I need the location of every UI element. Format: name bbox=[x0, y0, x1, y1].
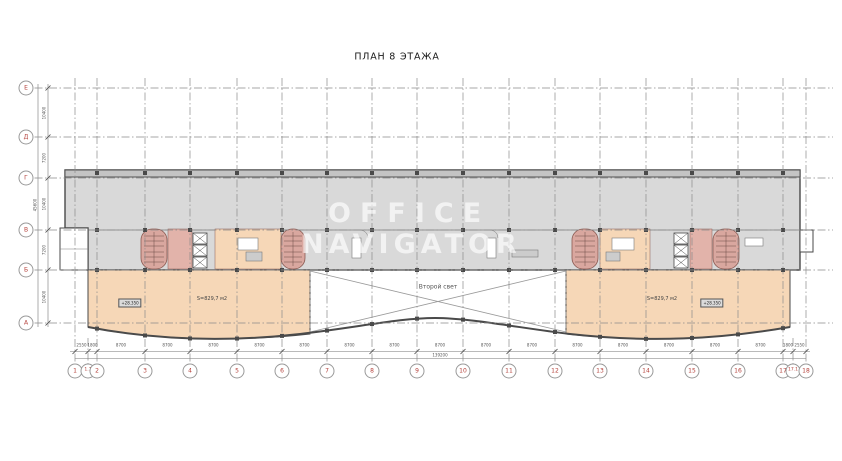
left-core bbox=[141, 229, 305, 269]
structural-column bbox=[280, 171, 284, 175]
core-room bbox=[168, 229, 192, 269]
core-room bbox=[690, 229, 712, 269]
bay-dimension: 8700 bbox=[254, 343, 264, 348]
grid-column-label: 13 bbox=[596, 368, 604, 374]
structural-column bbox=[325, 329, 329, 333]
structural-column bbox=[325, 171, 329, 175]
structural-column bbox=[415, 171, 419, 175]
structural-column bbox=[143, 171, 147, 175]
grid-column-label: 18 bbox=[802, 368, 810, 374]
structural-column bbox=[370, 322, 374, 326]
grid-column-bubble-13: 13 bbox=[593, 364, 608, 379]
structural-column bbox=[188, 336, 192, 340]
total-height-dimension: 45600 bbox=[33, 199, 38, 212]
grid-column-bubble-3: 3 bbox=[138, 364, 153, 379]
bay-dimension: 8700 bbox=[572, 343, 582, 348]
grid-row-bubble-Г: Г bbox=[19, 171, 34, 186]
floor-plan-page: OFFICE NAVIGATOR ПЛАН 8 ЭТАЖА Второй све… bbox=[0, 0, 842, 461]
grid-column-label: 9 bbox=[415, 368, 419, 374]
watermark-line1: OFFICE bbox=[328, 198, 490, 229]
structural-column bbox=[644, 337, 648, 341]
grid-column-bubble-15: 15 bbox=[685, 364, 700, 379]
structural-column bbox=[644, 171, 648, 175]
bay-dimension: 8700 bbox=[162, 343, 172, 348]
structural-column bbox=[235, 337, 239, 341]
grid-column-label: 14 bbox=[642, 368, 650, 374]
structural-column bbox=[781, 326, 785, 330]
bay-dimension: 1800 bbox=[783, 343, 793, 348]
structural-column bbox=[781, 171, 785, 175]
grid-column-label: 4 bbox=[188, 368, 192, 374]
grid-row-label: Е bbox=[24, 85, 28, 91]
structural-column bbox=[461, 318, 465, 322]
bay-dimension: 8700 bbox=[755, 343, 765, 348]
grid-column-bubble-18: 18 bbox=[799, 364, 814, 379]
shaft-outline bbox=[238, 238, 258, 250]
grid-column-bubble-12: 12 bbox=[548, 364, 563, 379]
bay-dimension: 8700 bbox=[116, 343, 126, 348]
bay-dimension: 8700 bbox=[481, 343, 491, 348]
grid-column-label: 6 bbox=[280, 368, 284, 374]
grid-column-bubble-6: 6 bbox=[275, 364, 290, 379]
area-label-left: S=829,7 м2 bbox=[197, 296, 227, 302]
grid-row-bubble-В: В bbox=[19, 223, 34, 238]
orange-zone-right bbox=[566, 270, 790, 339]
shaft-outline bbox=[606, 252, 620, 261]
structural-column bbox=[370, 171, 374, 175]
watermark-line2: NAVIGATOR bbox=[301, 229, 522, 260]
structural-column bbox=[507, 324, 511, 328]
grid-column-bubble-10: 10 bbox=[456, 364, 471, 379]
grid-column-label: 3 bbox=[143, 368, 147, 374]
grid-row-label: Д bbox=[24, 134, 29, 140]
shaft-outline bbox=[246, 252, 262, 261]
structural-column bbox=[280, 334, 284, 338]
structural-column bbox=[598, 171, 602, 175]
structural-column bbox=[235, 171, 239, 175]
area-label-right: S=829,7 м2 bbox=[647, 296, 677, 302]
grid-column-bubble-11: 11 bbox=[502, 364, 517, 379]
row-dimension: 10400 bbox=[42, 290, 47, 303]
grid-column-bubble-5: 5 bbox=[230, 364, 245, 379]
bay-dimension: 2550 bbox=[76, 343, 86, 348]
void-cross bbox=[310, 270, 566, 334]
bay-dimension: 1800 bbox=[87, 343, 97, 348]
structural-column bbox=[95, 327, 99, 331]
bay-dimension: 8700 bbox=[664, 343, 674, 348]
row-dimension: 10400 bbox=[42, 198, 47, 211]
bay-dimension: 8700 bbox=[389, 343, 399, 348]
drawing-title: ПЛАН 8 ЭТАЖА bbox=[354, 52, 439, 63]
grid-column-label: 7 bbox=[325, 368, 329, 374]
structural-column bbox=[188, 171, 192, 175]
grid-column-label: 16 bbox=[734, 368, 742, 374]
grid-column-label: 10 bbox=[459, 368, 467, 374]
structural-column bbox=[143, 333, 147, 337]
grid-column-label: 15 bbox=[688, 368, 696, 374]
elevation-mark-left: +28.350 bbox=[118, 299, 141, 308]
elevation-mark-right: +28.350 bbox=[700, 299, 723, 308]
grid-column-label: 11 bbox=[505, 368, 513, 374]
row-dimension: 10400 bbox=[42, 106, 47, 119]
grid-row-bubble-Е: Е bbox=[19, 81, 34, 96]
grid-column-label: 17.1 bbox=[788, 369, 798, 374]
grid-column-bubble-8: 8 bbox=[365, 364, 380, 379]
bay-dimension: 2550 bbox=[794, 343, 804, 348]
grid-row-bubble-Б: Б bbox=[19, 263, 34, 278]
structural-column bbox=[598, 335, 602, 339]
bay-dimension: 8700 bbox=[208, 343, 218, 348]
grid-column-label: 5 bbox=[235, 368, 239, 374]
structural-column bbox=[415, 317, 419, 321]
grid-row-label: В bbox=[24, 227, 28, 233]
bay-dimension: 8700 bbox=[435, 343, 445, 348]
grid-column-bubble-9: 9 bbox=[410, 364, 425, 379]
structural-column bbox=[461, 171, 465, 175]
grid-row-bubble-Д: Д bbox=[19, 130, 34, 145]
grid-column-bubble-7: 7 bbox=[320, 364, 335, 379]
bay-dimension: 8700 bbox=[527, 343, 537, 348]
total-width-dimension: 139200 bbox=[432, 353, 447, 358]
structural-column bbox=[736, 332, 740, 336]
bay-dimension: 8700 bbox=[299, 343, 309, 348]
top-wall bbox=[65, 170, 800, 177]
grid-column-bubble-2: 2 bbox=[90, 364, 105, 379]
grid-column-label: 12 bbox=[551, 368, 559, 374]
structural-column bbox=[95, 171, 99, 175]
shaft-outline bbox=[745, 238, 763, 246]
structural-column bbox=[690, 336, 694, 340]
row-dimension: 7200 bbox=[42, 152, 47, 162]
bay-dimension: 8700 bbox=[618, 343, 628, 348]
structural-column bbox=[736, 171, 740, 175]
grid-row-label: Г bbox=[24, 175, 28, 181]
right-appendix bbox=[800, 230, 813, 252]
grid-row-bubble-А: А bbox=[19, 316, 34, 331]
structural-column bbox=[690, 171, 694, 175]
bay-dimension: 8700 bbox=[710, 343, 720, 348]
bay-dimension: 8700 bbox=[344, 343, 354, 348]
row-dimension: 7200 bbox=[42, 245, 47, 255]
grid-column-label: 1 bbox=[73, 368, 77, 374]
grid-column-label: 2 bbox=[95, 368, 99, 374]
shaft-outline bbox=[612, 238, 634, 250]
grid-column-bubble-16: 16 bbox=[731, 364, 746, 379]
void-label: Второй свет bbox=[419, 284, 458, 291]
structural-column bbox=[553, 171, 557, 175]
grid-row-label: А bbox=[24, 320, 28, 326]
grid-column-bubble-4: 4 bbox=[183, 364, 198, 379]
structural-column bbox=[553, 330, 557, 334]
structural-column bbox=[507, 171, 511, 175]
grid-column-label: 8 bbox=[370, 368, 374, 374]
grid-column-bubble-14: 14 bbox=[639, 364, 654, 379]
grid-row-label: Б bbox=[24, 267, 28, 273]
